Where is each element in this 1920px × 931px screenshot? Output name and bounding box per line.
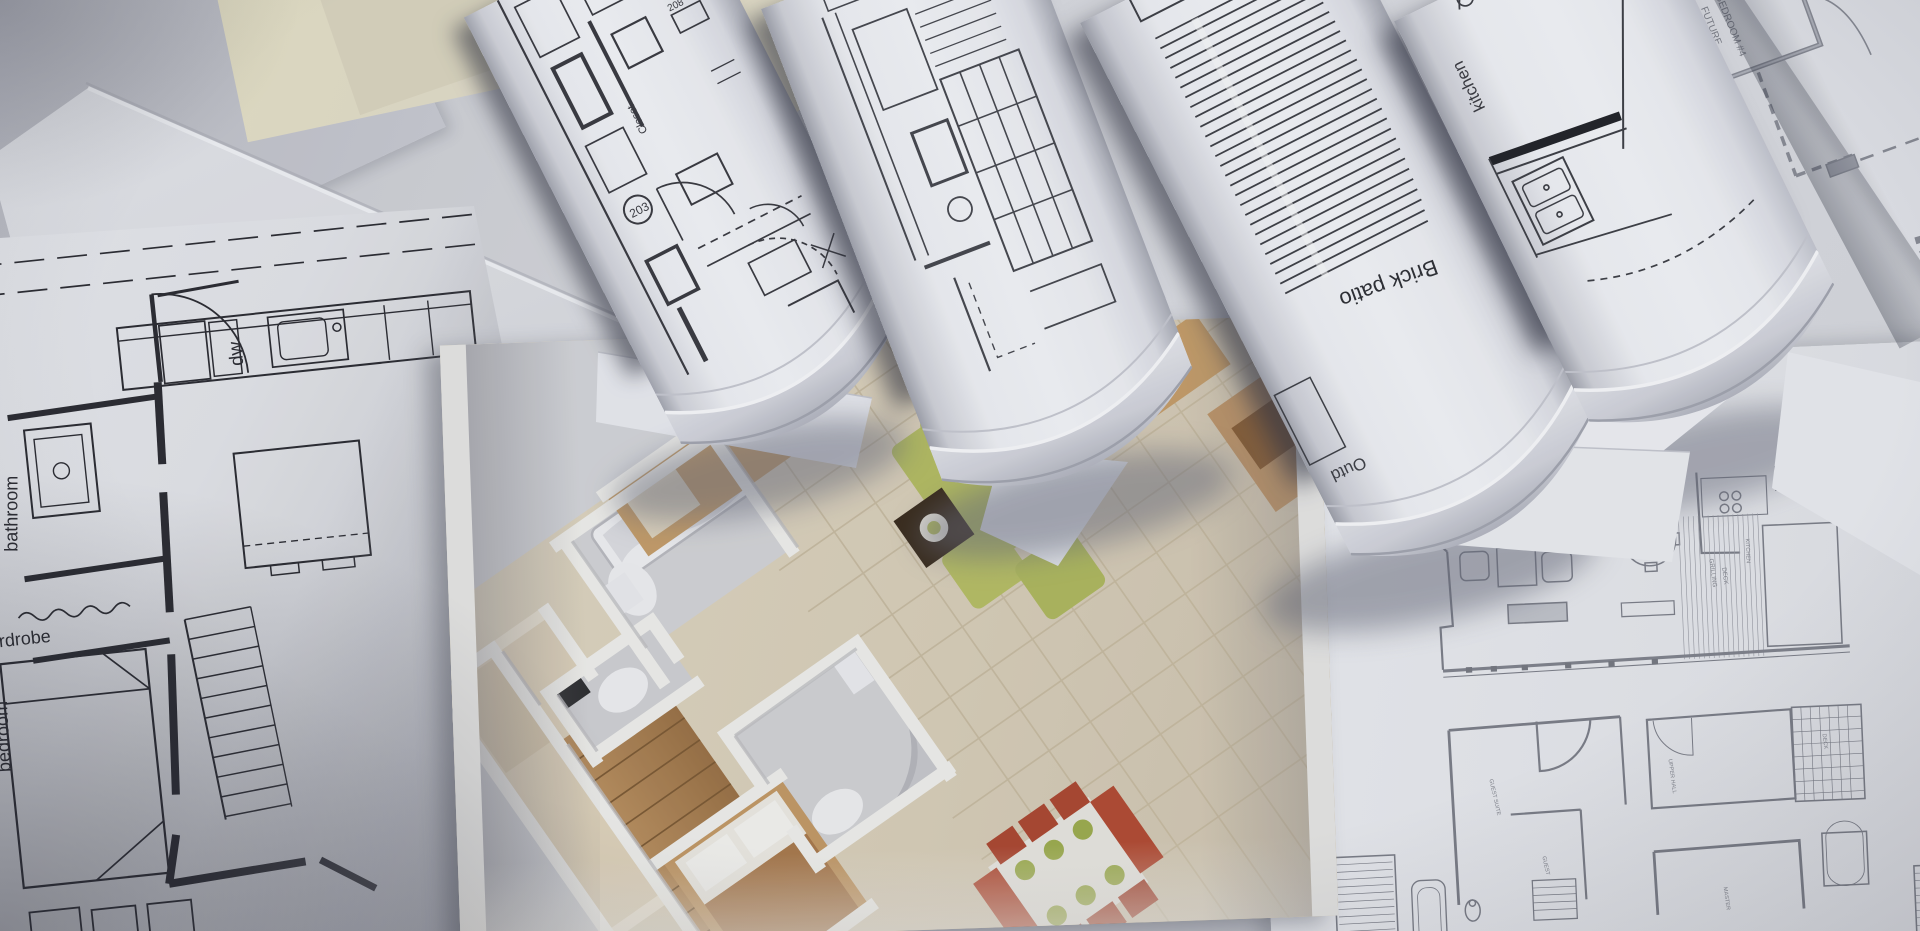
svg-text:Brick patio: Brick patio	[1336, 254, 1441, 313]
svg-text:203: 203	[627, 199, 651, 221]
svg-text:Outd: Outd	[1328, 453, 1369, 486]
svg-text:kitchen: kitchen	[1448, 58, 1489, 115]
